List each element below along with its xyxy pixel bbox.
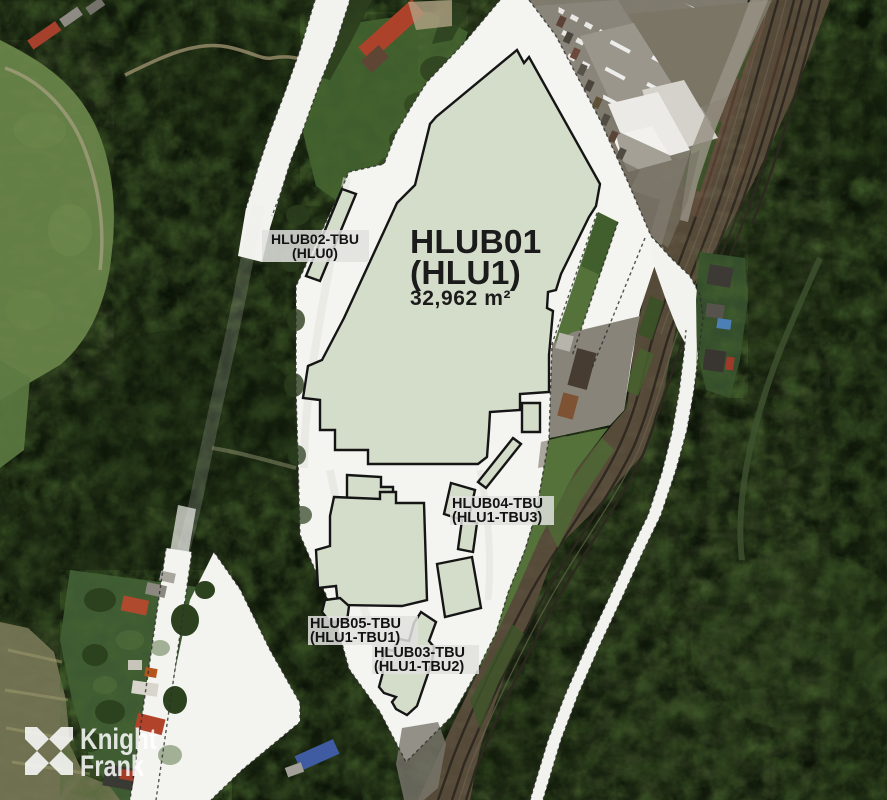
svg-text:(HLU0): (HLU0) (292, 245, 338, 261)
svg-text:32,962 m²: 32,962 m² (410, 287, 511, 310)
svg-text:(HLU1-TBU2): (HLU1-TBU2) (374, 659, 464, 675)
svg-text:(HLU1-TBU3): (HLU1-TBU3) (452, 510, 542, 526)
svg-text:(HLU1-TBU1): (HLU1-TBU1) (310, 630, 400, 646)
svg-text:Frank: Frank (80, 750, 144, 783)
